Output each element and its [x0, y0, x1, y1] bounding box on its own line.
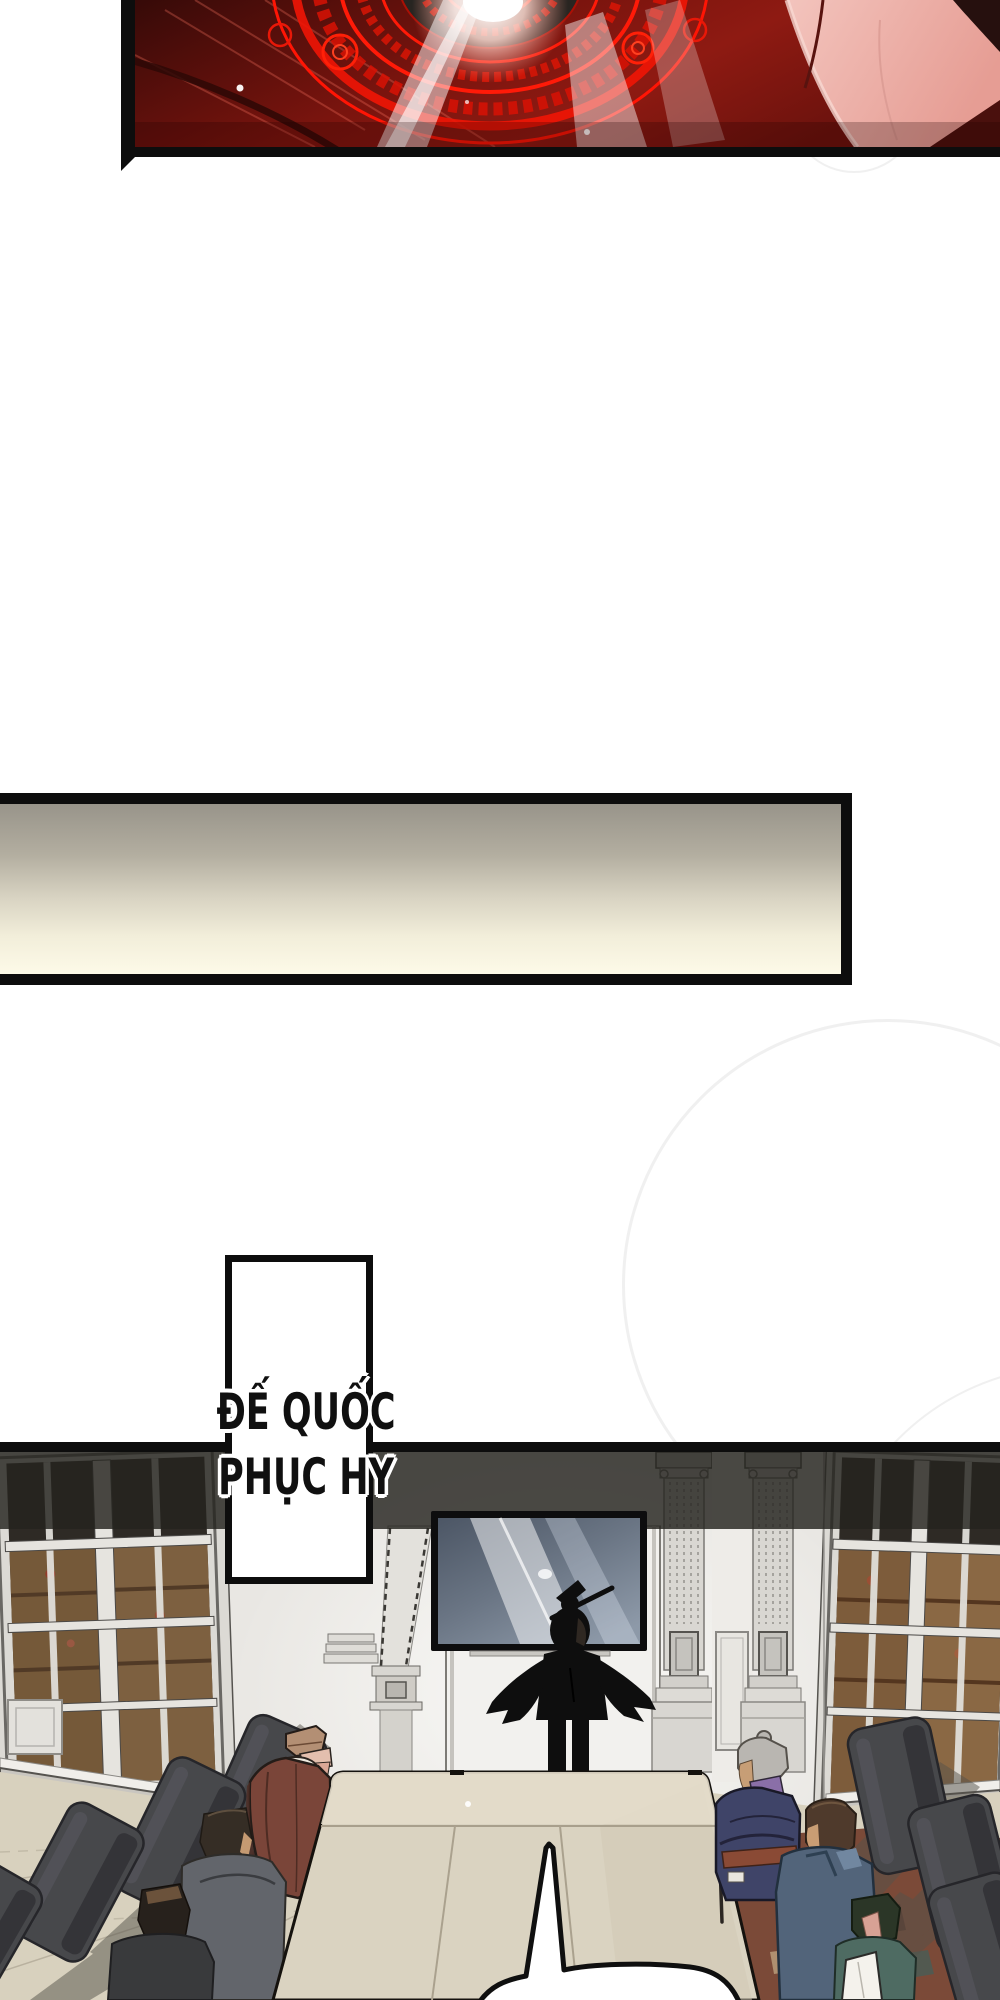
wall-molding-steps — [324, 1634, 378, 1663]
meeting-room-art — [0, 1452, 1000, 2000]
tv-screen — [431, 1511, 647, 1656]
title-line-1: ĐẾ QUỐC — [216, 1387, 395, 1437]
comic-page: ĐẾ QUỐC PHỤC HY — [0, 0, 1000, 2000]
title-line-2: PHỤC HY — [218, 1452, 394, 1502]
panel-gradient-bar — [0, 793, 852, 985]
panel-magic-circle — [121, 0, 1000, 157]
bottom-vignette — [135, 122, 1000, 147]
panel-meeting-room — [0, 1442, 1000, 2000]
panel-corner-notch — [121, 157, 135, 171]
magic-circle-art — [135, 0, 1000, 147]
